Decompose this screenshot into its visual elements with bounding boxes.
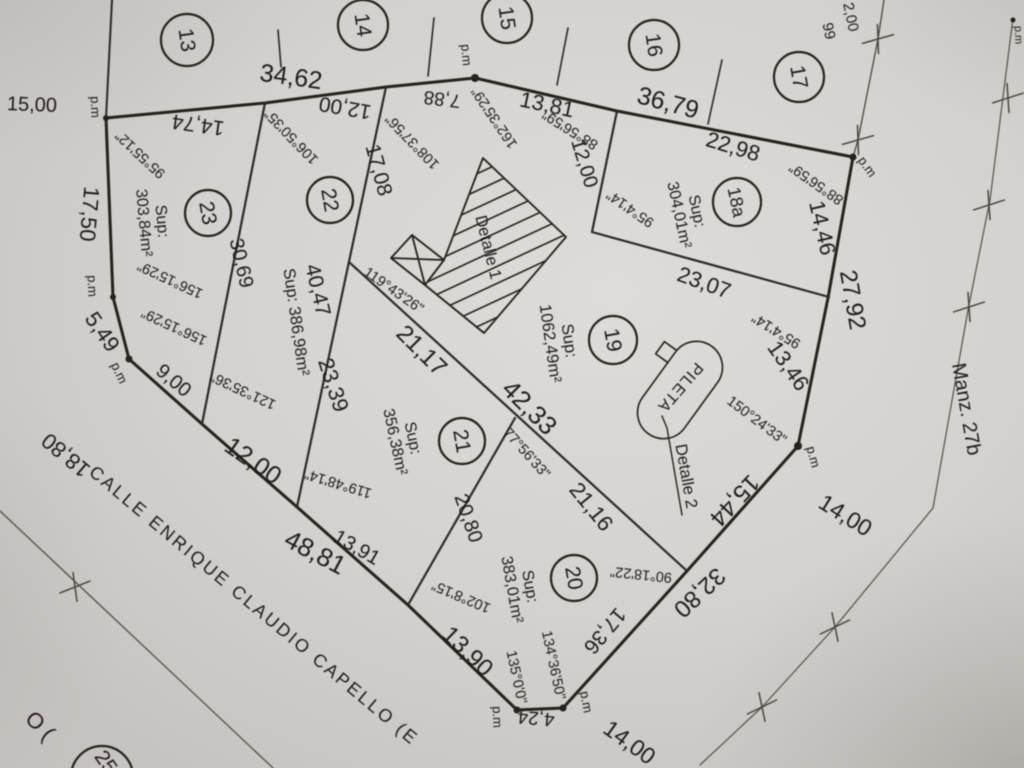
svg-text:17,50: 17,50: [75, 186, 105, 243]
svg-text:15,00: 15,00: [7, 93, 58, 117]
svg-text:15: 15: [493, 5, 519, 31]
svg-text:14: 14: [349, 12, 375, 39]
svg-text:20: 20: [560, 565, 587, 592]
svg-text:p.m: p.m: [1012, 26, 1024, 45]
svg-text:23: 23: [194, 200, 221, 227]
svg-text:99: 99: [818, 21, 838, 41]
svg-text:7,88: 7,88: [423, 86, 462, 111]
svg-text:22: 22: [316, 187, 343, 214]
svg-text:4,24: 4,24: [516, 705, 555, 729]
svg-text:p.m: p.m: [490, 706, 506, 728]
svg-text:p.m: p.m: [458, 44, 475, 67]
svg-text:16: 16: [640, 32, 666, 58]
svg-text:17: 17: [785, 64, 812, 91]
svg-text:19: 19: [599, 327, 626, 354]
svg-text:13: 13: [173, 27, 199, 53]
svg-text:p.m: p.m: [88, 96, 104, 118]
svg-text:p.m: p.m: [85, 275, 101, 297]
svg-text:21: 21: [448, 428, 475, 455]
